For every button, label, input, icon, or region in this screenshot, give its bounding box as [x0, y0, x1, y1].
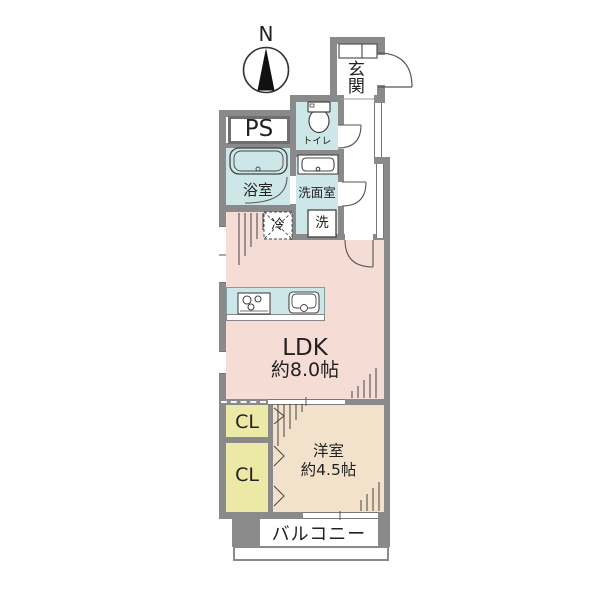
window-left-lower: [219, 351, 226, 374]
toilet-label: トイレ: [296, 137, 338, 147]
wall-bottom-right: [378, 512, 390, 519]
wall-right-connector: [374, 95, 382, 103]
toilet-door-arc: [338, 125, 361, 148]
entrance-door-arc: [378, 53, 412, 87]
wall-ldk-western: [345, 399, 390, 405]
wall-center-column-upper: [290, 95, 296, 176]
balcony-label: バルコニー: [255, 526, 383, 545]
balcony-rail: [233, 546, 389, 561]
window-left-upper: [219, 226, 226, 283]
window-right-upper: [374, 103, 382, 157]
laundry-label: 洗: [308, 216, 336, 230]
kitchen-counter-edge: [226, 314, 325, 321]
western-room-size-label: 約4.5帖: [273, 462, 384, 478]
floor-plan: N 玄関 PS トイレ 浴室 洗面室 洗 冷 LDK 約8.0帖 CL CL 洋…: [0, 0, 600, 600]
washroom-label: 洗面室: [296, 186, 338, 199]
wall-right: [384, 157, 390, 519]
wall-bottom-left: [219, 512, 303, 519]
ldk-size-label: 約8.0帖: [226, 361, 384, 381]
wall-left: [219, 110, 226, 519]
washroom-door-arc: [342, 182, 366, 206]
refrigerator-label: 冷: [264, 218, 292, 232]
wall-hall-left-2: [338, 149, 344, 182]
kitchen-counter: [226, 287, 325, 316]
wall-genkan-left: [330, 37, 337, 95]
compass-icon: [244, 48, 289, 93]
genkan-label: 玄関: [344, 54, 362, 100]
window-right-lower: [376, 164, 384, 238]
wall-toilet-washroom: [290, 150, 344, 157]
closet1-label: CL: [226, 413, 268, 433]
wall-closet-divider: [219, 437, 273, 443]
western-room-label: 洋室: [273, 443, 384, 459]
sliding-door-balcony: [303, 512, 378, 519]
wall-toilet-top: [290, 95, 344, 102]
wall-ldk-closet-dash: [221, 401, 266, 403]
bathroom-label: 浴室: [226, 183, 290, 199]
closet2-label: CL: [226, 466, 268, 486]
compass-n-label: N: [246, 24, 286, 45]
sliding-door-ldk-western: [268, 399, 345, 405]
ps-label: PS: [228, 117, 290, 141]
ldk-label: LDK: [226, 336, 384, 360]
wall-ldk-top-left: [290, 234, 345, 240]
wall-genkan-right-upper: [377, 37, 385, 55]
wall-bathroom-bottom: [219, 205, 296, 212]
